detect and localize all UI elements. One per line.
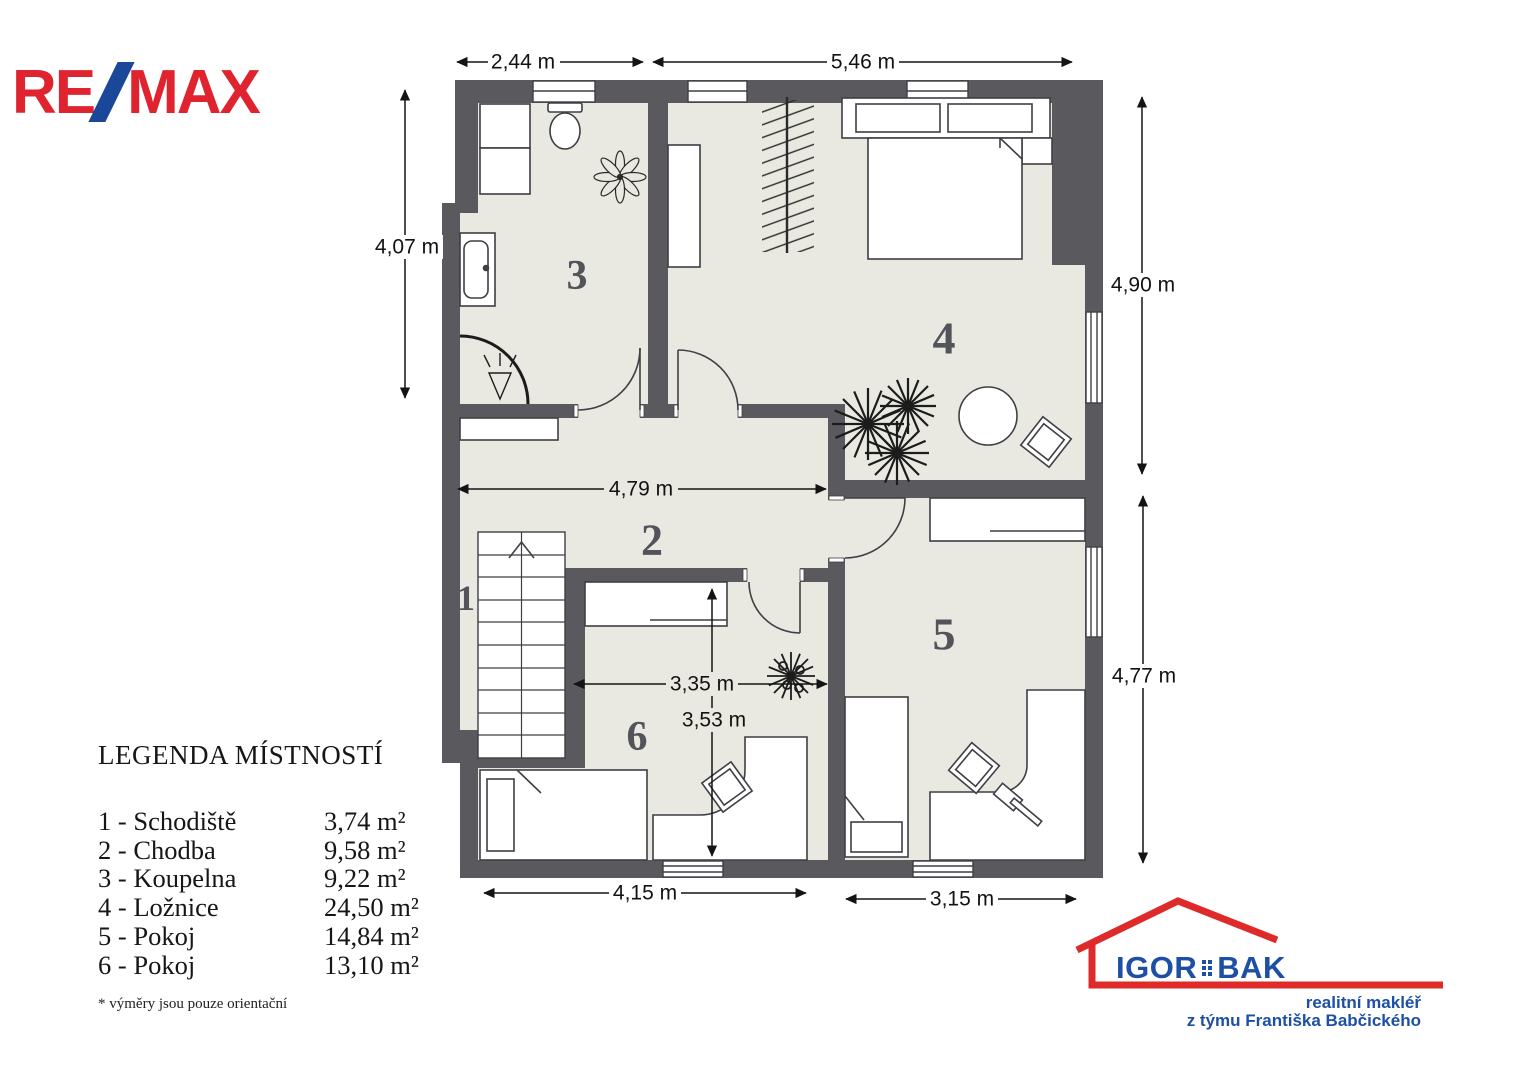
agent-logo-wordmark: IGOR BAK: [1116, 950, 1286, 986]
window-right-bedroom: [1086, 312, 1102, 403]
legend-row-2: 2 - Chodba 9,58 m²: [98, 836, 419, 865]
legend-row-1: 1 - Schodiště 3,74 m²: [98, 807, 419, 836]
legend-room-name: 1 - Schodiště: [98, 807, 324, 836]
room-label-2: 2: [641, 516, 663, 565]
legend-room-name: 2 - Chodba: [98, 836, 324, 865]
hall-sideboard: [460, 418, 558, 440]
clothes-rail-icon: [762, 97, 814, 253]
room-label-4: 4: [933, 313, 956, 364]
agent-tagline-line2: z týmu Františka Babčického: [1187, 1012, 1421, 1030]
legend-room-area: 13,10 m²: [324, 951, 419, 980]
legend-room-area: 9,58 m²: [324, 836, 406, 865]
room6-wardrobe: [585, 582, 727, 626]
agent-logo-bak: BAK: [1217, 950, 1286, 986]
dim-right-bottom: 4,77 m: [1112, 665, 1176, 688]
legend-room-area: 9,22 m²: [324, 864, 406, 893]
dim-room6-height: 3,53 m: [682, 709, 746, 732]
nightstand: [1022, 138, 1052, 164]
window-bottom-room6: [663, 861, 723, 877]
dim-room6-width: 3,35 m: [670, 673, 734, 696]
dim-right-top: 4,90 m: [1111, 274, 1175, 297]
legend-room-name: 5 - Pokoj: [98, 922, 324, 951]
room-label-5: 5: [933, 609, 956, 660]
agent-logo-igor: IGOR: [1116, 950, 1197, 986]
dim-hall-width: 4,79 m: [609, 478, 673, 501]
legend-row-6: 6 - Pokoj 13,10 m²: [98, 951, 419, 980]
legend-row-5: 5 - Pokoj 14,84 m²: [98, 922, 419, 951]
legend-room-name: 4 - Ložnice: [98, 893, 324, 922]
flower-plant-icon: [594, 151, 646, 203]
legend-room-area: 24,50 m²: [324, 893, 419, 922]
room-label-3: 3: [567, 253, 588, 299]
room5-bed-icon: [845, 697, 908, 857]
dim-left: 4,07 m: [375, 236, 439, 259]
room6-bed-icon: [480, 770, 647, 860]
legend-room-name: 3 - Koupelna: [98, 864, 324, 893]
bedroom-headboard: [842, 98, 1050, 138]
round-table-icon: [959, 387, 1017, 445]
agent-tagline-line1: realitní makléř: [1187, 994, 1421, 1012]
dim-bottom-left: 4,15 m: [613, 882, 677, 905]
sink-icon: [460, 233, 495, 306]
legend-title: LEGENDA MÍSTNOSTÍ: [98, 740, 419, 771]
room-label-1: 1: [457, 578, 475, 618]
window-bottom-room5: [913, 861, 973, 877]
double-bed-icon: [868, 138, 1022, 259]
legend-footnote: * výměry jsou pouze orientační: [98, 996, 287, 1013]
legend-room-name: 6 - Pokoj: [98, 951, 324, 980]
dim-top-right: 5,46 m: [831, 51, 895, 74]
window-top-bathroom: [533, 81, 595, 102]
window-right-room5: [1086, 547, 1102, 637]
stairs-icon: [478, 532, 565, 758]
floorplan-page: { "remax": { "re": "RE", "max": "MAX" },…: [0, 0, 1527, 1080]
room-label-6: 6: [627, 714, 648, 760]
window-top-closet: [688, 81, 747, 102]
legend-room-area: 3,74 m²: [324, 807, 406, 836]
toilet-icon: [548, 103, 582, 149]
legend-room-area: 14,84 m²: [324, 922, 419, 951]
closet-wardrobe: [668, 145, 700, 267]
room5-shelf: [930, 498, 1085, 541]
legend-row-3: 3 - Koupelna 9,22 m²: [98, 864, 419, 893]
bathroom-cabinet: [480, 104, 530, 194]
legend-row-4: 4 - Ložnice 24,50 m²: [98, 893, 419, 922]
dim-bottom-right: 3,15 m: [930, 888, 994, 911]
separator-dots-icon: [1202, 960, 1212, 976]
legend: LEGENDA MÍSTNOSTÍ 1 - Schodiště 3,74 m² …: [98, 740, 419, 979]
agent-tagline: realitní makléř z týmu Františka Babčick…: [1187, 994, 1421, 1029]
legend-items: 1 - Schodiště 3,74 m² 2 - Chodba 9,58 m²…: [98, 807, 419, 979]
dim-top-left: 2,44 m: [491, 51, 555, 74]
